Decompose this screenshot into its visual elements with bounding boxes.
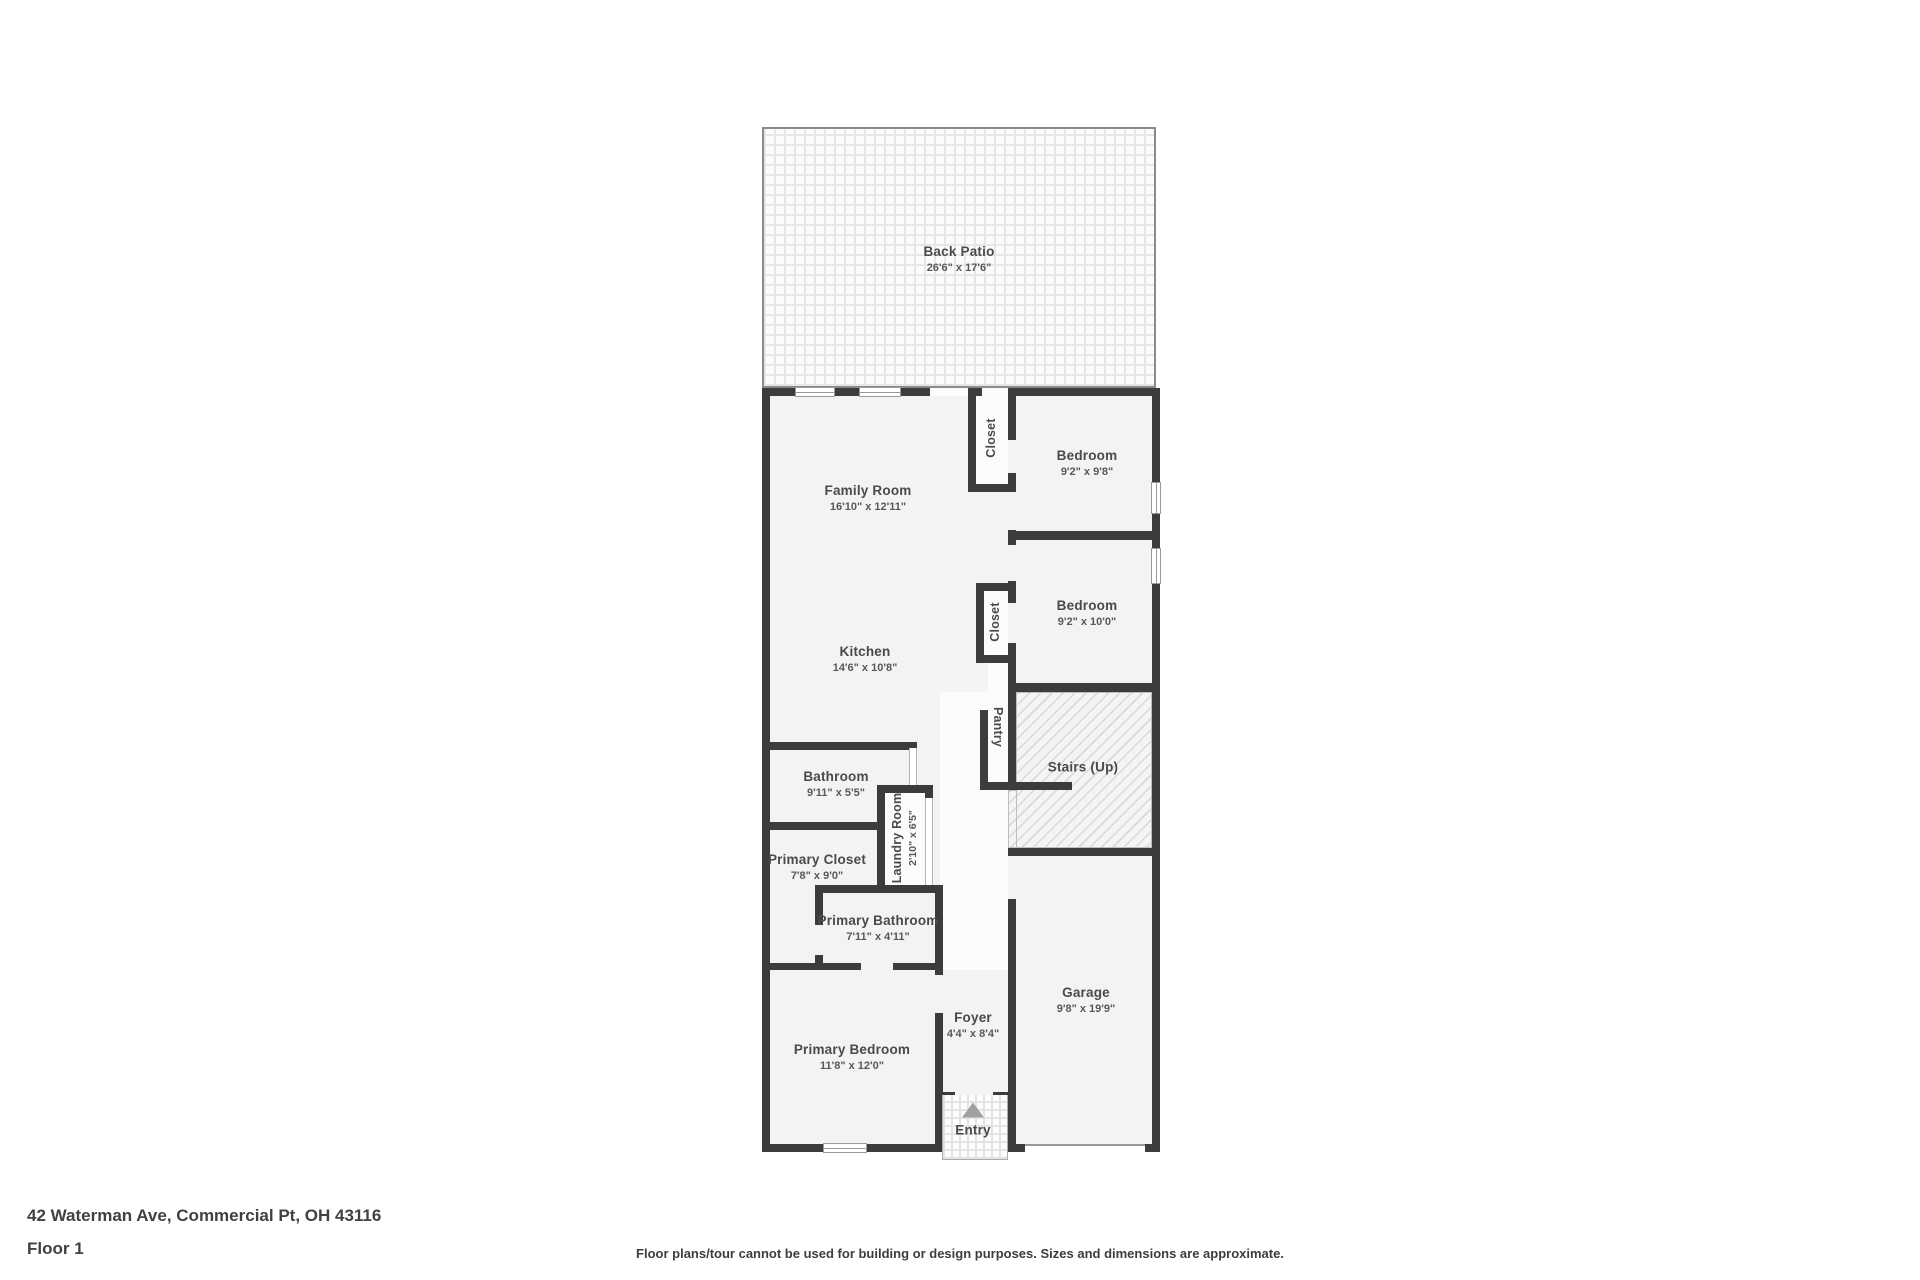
- room-label-primary-bedroom: Primary Bedroom 11'8" x 12'0": [794, 1042, 910, 1074]
- wall-segment: [762, 388, 770, 1152]
- window-marker: [1151, 548, 1161, 584]
- bathroom-door: [909, 748, 917, 785]
- wall-segment: [762, 963, 861, 970]
- room-name: Primary Closet: [768, 852, 866, 869]
- wall-segment: [1008, 643, 1016, 790]
- wall-segment: [976, 655, 1016, 663]
- room-dims: 26'6" x 17'6": [923, 262, 994, 276]
- room-name: Back Patio: [923, 244, 994, 261]
- wall-segment: [925, 785, 933, 798]
- floor-plan-page: Back Patio 26'6" x 17'6" Family Room 16'…: [0, 0, 1920, 1280]
- window-marker: [795, 387, 835, 397]
- wall-segment: [762, 742, 917, 750]
- room-label-bathroom: Bathroom 9'11" x 5'5": [803, 769, 868, 801]
- wall-segment: [1008, 683, 1160, 692]
- room-label-garage: Garage 9'8" x 19'9": [1057, 985, 1115, 1017]
- room-label-primary-closet: Primary Closet 7'8" x 9'0": [768, 852, 866, 884]
- room-name: Garage: [1057, 985, 1115, 1002]
- room-label-primary-bathroom: Primary Bathroom 7'11" x 4'11": [818, 913, 939, 945]
- room-name: Entry: [955, 1123, 991, 1140]
- room-dims: 11'8" x 12'0": [794, 1060, 910, 1074]
- room-dims: 14'6" x 10'8": [833, 662, 898, 676]
- wall-segment: [968, 396, 976, 492]
- room-name: Family Room: [825, 483, 912, 500]
- wall-segment: [1008, 396, 1016, 440]
- wall-segment: [968, 484, 1016, 492]
- room-dims: 9'11" x 5'5": [803, 787, 868, 801]
- window-marker: [859, 387, 901, 397]
- room-name: Closet: [984, 418, 1000, 457]
- room-name: Bedroom: [1057, 448, 1118, 465]
- room-name: Pantry: [989, 707, 1005, 747]
- room-dims: 7'8" x 9'0": [768, 870, 866, 884]
- room-dims: 7'11" x 4'11": [818, 931, 939, 945]
- window-marker: [1151, 482, 1161, 514]
- wall-segment: [877, 785, 885, 893]
- room-name: Stairs (Up): [1048, 760, 1118, 777]
- room-name: Bathroom: [803, 769, 868, 786]
- patio-door-opening: [930, 388, 968, 396]
- room-name: Primary Bathroom: [818, 913, 939, 930]
- room-name: Laundry Room: [890, 793, 906, 884]
- wall-segment: [1008, 899, 1016, 1144]
- room-name: Foyer: [947, 1010, 999, 1027]
- wall-segment: [980, 710, 988, 790]
- room-dims: 16'10" x 12'11": [825, 501, 912, 515]
- room-dims: 9'2" x 10'0": [1057, 616, 1118, 630]
- room-label-closet-2: Closet: [988, 602, 1004, 641]
- wall-segment: [1008, 848, 1160, 856]
- room-dims: 4'4" x 8'4": [947, 1028, 999, 1042]
- room-dims: 9'2" x 9'8": [1057, 466, 1118, 480]
- wall-segment: [980, 782, 1072, 790]
- room-label-bedroom-1: Bedroom 9'2" x 9'8": [1057, 448, 1118, 480]
- room-label-bedroom-2: Bedroom 9'2" x 10'0": [1057, 598, 1118, 630]
- stairs-area-lower: [1008, 790, 1016, 848]
- disclaimer-text: Floor plans/tour cannot be used for buil…: [0, 1246, 1920, 1261]
- room-label-laundry: Laundry Room 2'10" x 6'5": [890, 793, 920, 884]
- wall-segment: [976, 583, 984, 663]
- room-name: Closet: [988, 602, 1004, 641]
- room-label-kitchen: Kitchen 14'6" x 10'8": [833, 644, 898, 676]
- room-name: Bedroom: [1057, 598, 1118, 615]
- wall-segment: [935, 1013, 943, 1093]
- window-marker: [823, 1143, 867, 1153]
- address-text: 42 Waterman Ave, Commercial Pt, OH 43116: [27, 1206, 381, 1226]
- laundry-door: [925, 798, 933, 885]
- room-dims: 9'8" x 19'9": [1057, 1003, 1115, 1017]
- room-label-stairs: Stairs (Up): [1048, 760, 1118, 777]
- room-label-pantry: Pantry: [989, 707, 1005, 747]
- wall-segment: [1008, 531, 1160, 540]
- entry-arrow-icon: [962, 1103, 984, 1118]
- room-label-family-room: Family Room 16'10" x 12'11": [825, 483, 912, 515]
- room-name: Kitchen: [833, 644, 898, 661]
- garage-door: [1025, 1144, 1145, 1152]
- patio-door-opening-2: [982, 388, 1008, 396]
- wall-segment: [762, 822, 880, 830]
- room-label-closet-1: Closet: [984, 418, 1000, 457]
- room-label-back-patio: Back Patio 26'6" x 17'6": [923, 244, 994, 276]
- room-label-entry: Entry: [955, 1123, 991, 1140]
- room-label-foyer: Foyer 4'4" x 8'4": [947, 1010, 999, 1042]
- room-dims: 2'10" x 6'5": [907, 793, 920, 884]
- room-name: Primary Bedroom: [794, 1042, 910, 1059]
- wall-segment: [815, 885, 942, 893]
